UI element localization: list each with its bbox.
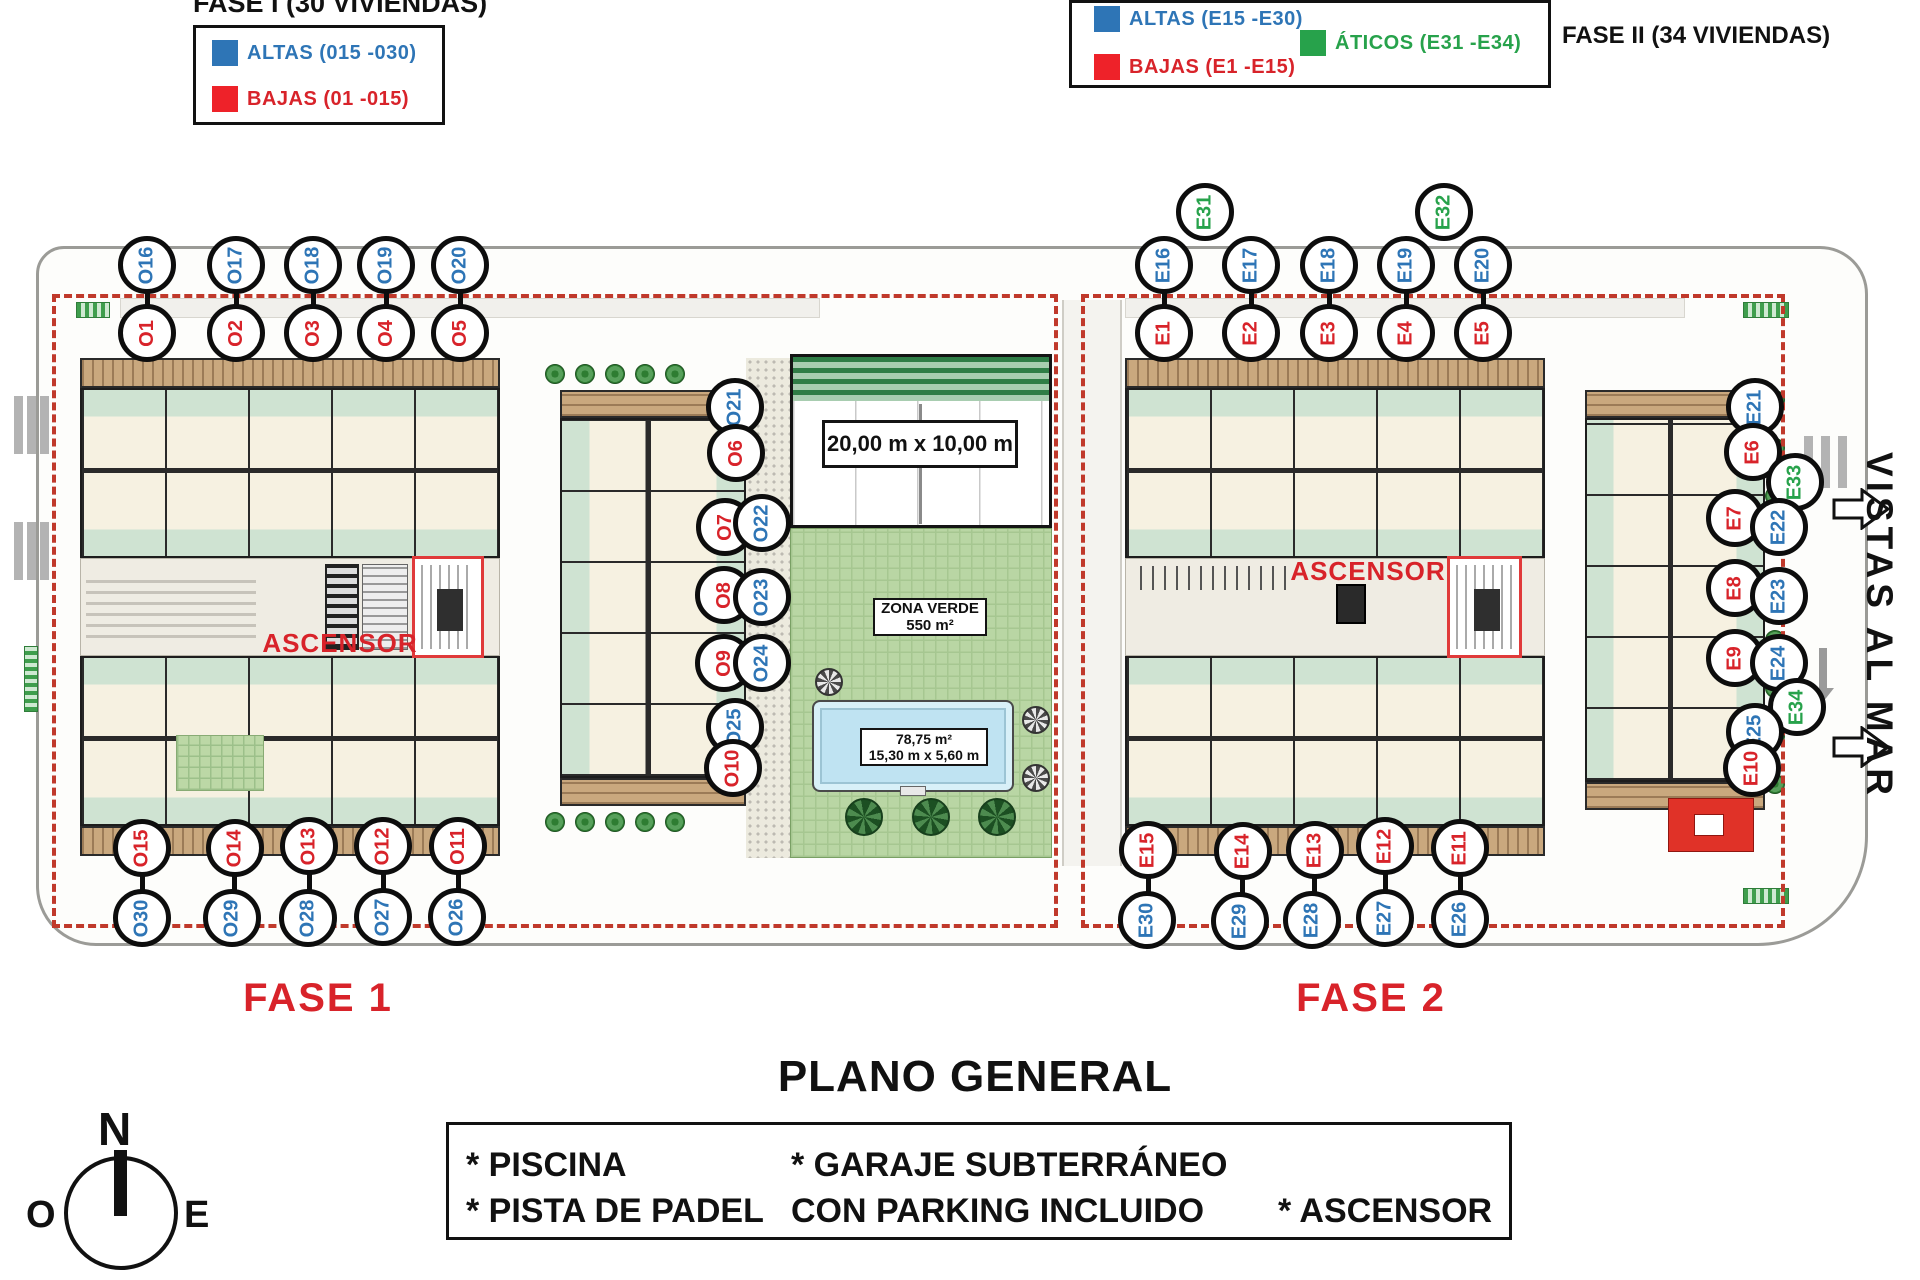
unit-marker-O14: O14 bbox=[206, 819, 264, 877]
curb-bar bbox=[40, 396, 49, 454]
amenity-pista-padel: * PISTA DE PADEL bbox=[466, 1192, 764, 1231]
legend-label: BAJAS (E1 -E15) bbox=[1129, 56, 1295, 79]
unit-marker-label: E11 bbox=[1448, 831, 1471, 865]
compass-north-label: N bbox=[98, 1102, 131, 1156]
unit-marker-O3: O3 bbox=[284, 304, 342, 362]
padel-dimensions-box: 20,00 m x 10,00 m bbox=[822, 420, 1018, 468]
unit-marker-E10: E10 bbox=[1723, 739, 1781, 797]
unit-marker-label: O17 bbox=[225, 246, 248, 284]
unit-marker-label: E28 bbox=[1301, 902, 1324, 938]
unit-marker-label: O12 bbox=[372, 827, 395, 865]
fase1-ascensor-label: ASCENSOR bbox=[225, 628, 455, 659]
unit-marker-E20: E20 bbox=[1454, 236, 1512, 294]
unit-marker-E14: E14 bbox=[1214, 822, 1272, 880]
unit-marker-E1: E1 bbox=[1135, 304, 1193, 362]
unit-marker-label: O20 bbox=[449, 246, 472, 284]
legend-fase2-box: ALTAS (E15 -E30) BAJAS (E1 -E15) ÁTICOS … bbox=[1069, 0, 1551, 88]
unit-marker-E31: E31 bbox=[1176, 183, 1234, 241]
page-title: PLANO GENERAL bbox=[760, 1052, 1190, 1102]
unit-marker-label: O18 bbox=[302, 246, 325, 284]
unit-marker-label: O29 bbox=[221, 899, 244, 937]
fase2-ascensor-label: ASCENSOR bbox=[1258, 556, 1478, 587]
zona-verde-box: ZONA VERDE 550 m² bbox=[873, 598, 987, 636]
fase2-bottom-wing-units bbox=[1125, 656, 1545, 826]
elevator-cab bbox=[1474, 589, 1500, 631]
site-plan-stage: FASE I (30 VIVIENDAS) ALTAS (015 -030) B… bbox=[0, 0, 1920, 1280]
unit-marker-O24: O24 bbox=[733, 634, 791, 692]
bajas-color-swatch bbox=[1094, 54, 1120, 80]
unit-marker-label: E22 bbox=[1768, 509, 1791, 545]
unit-marker-label: O19 bbox=[375, 246, 398, 284]
curb-bar bbox=[14, 522, 23, 580]
amenity-parking: CON PARKING INCLUIDO bbox=[791, 1192, 1204, 1231]
unit-marker-label: E12 bbox=[1374, 828, 1397, 864]
unit-marker-label: E6 bbox=[1742, 440, 1765, 464]
fase2-top-wing-deck bbox=[1125, 358, 1545, 388]
unit-marker-label: E30 bbox=[1136, 902, 1159, 938]
unit-marker-E28: E28 bbox=[1283, 891, 1341, 949]
tree-icon bbox=[635, 812, 655, 832]
unit-marker-label: E4 bbox=[1395, 321, 1418, 345]
unit-marker-label: E27 bbox=[1374, 900, 1397, 936]
unit-marker-O5: O5 bbox=[431, 304, 489, 362]
unit-marker-O26: O26 bbox=[428, 888, 486, 946]
curb-bar bbox=[27, 396, 36, 454]
unit-marker-label: O4 bbox=[375, 320, 398, 347]
unit-marker-label: E14 bbox=[1232, 833, 1255, 869]
unit-marker-O13: O13 bbox=[280, 817, 338, 875]
pool-dimensions: 15,30 m x 5,60 m bbox=[869, 747, 980, 763]
unit-marker-E27: E27 bbox=[1356, 889, 1414, 947]
unit-marker-label: O11 bbox=[446, 828, 469, 865]
unit-marker-E13: E13 bbox=[1286, 821, 1344, 879]
legend-item-aticos-f2: ÁTICOS (E31 -E34) bbox=[1300, 30, 1521, 56]
compass-east-label: E bbox=[184, 1194, 209, 1237]
unit-marker-label: E1 bbox=[1153, 321, 1176, 345]
unit-marker-E5: E5 bbox=[1454, 304, 1512, 362]
legend-fase1-title: FASE I (30 VIVIENDAS) bbox=[193, 0, 487, 19]
padel-dimensions-text: 20,00 m x 10,00 m bbox=[827, 431, 1013, 457]
unit-marker-O4: O4 bbox=[357, 304, 415, 362]
unit-marker-O17: O17 bbox=[207, 236, 265, 294]
unit-marker-label: E33 bbox=[1784, 464, 1807, 500]
curb-bar bbox=[40, 522, 49, 580]
planter bbox=[1743, 888, 1789, 904]
unit-marker-label: E3 bbox=[1318, 321, 1341, 345]
unit-marker-label: O23 bbox=[751, 578, 774, 616]
unit-marker-label: E31 bbox=[1194, 194, 1217, 230]
unit-marker-label: E2 bbox=[1240, 321, 1263, 345]
unit-marker-E32: E32 bbox=[1415, 183, 1473, 241]
unit-marker-O16: O16 bbox=[118, 236, 176, 294]
tree-icon bbox=[605, 364, 625, 384]
unit-marker-label: E21 bbox=[1744, 389, 1767, 425]
fase1-top-wing-deck bbox=[80, 358, 500, 388]
unit-marker-O29: O29 bbox=[203, 889, 261, 947]
planter bbox=[24, 646, 38, 712]
unit-marker-O1: O1 bbox=[118, 304, 176, 362]
unit-marker-E12: E12 bbox=[1356, 817, 1414, 875]
tree-icon bbox=[605, 812, 625, 832]
pool-steps bbox=[900, 786, 926, 796]
tree-icon bbox=[665, 812, 685, 832]
unit-marker-label: E18 bbox=[1318, 247, 1341, 283]
amenity-piscina: * PISCINA bbox=[466, 1146, 627, 1185]
unit-marker-E23: E23 bbox=[1750, 567, 1808, 625]
zona-verde-area-value: 550 m² bbox=[906, 617, 954, 634]
utility-room-door bbox=[1694, 814, 1724, 837]
unit-marker-O20: O20 bbox=[431, 236, 489, 294]
planter bbox=[1743, 302, 1789, 318]
parasol-icon bbox=[815, 668, 843, 696]
unit-marker-label: O1 bbox=[136, 320, 159, 347]
palm-tree-icon bbox=[978, 798, 1016, 836]
legend-item-bajas-f2: BAJAS (E1 -E15) bbox=[1094, 54, 1295, 80]
unit-marker-label: O15 bbox=[131, 829, 154, 867]
access-road bbox=[1062, 300, 1122, 866]
unit-marker-label: E17 bbox=[1240, 247, 1263, 283]
palm-tree-icon bbox=[845, 798, 883, 836]
unit-marker-label: E13 bbox=[1304, 832, 1327, 868]
unit-marker-O10: O10 bbox=[704, 739, 762, 797]
curb-bar bbox=[14, 396, 23, 454]
unit-marker-label: O2 bbox=[225, 320, 248, 347]
unit-marker-label: E29 bbox=[1229, 903, 1252, 939]
unit-marker-O2: O2 bbox=[207, 304, 265, 362]
unit-marker-label: E10 bbox=[1741, 750, 1764, 786]
unit-marker-label: O30 bbox=[131, 899, 154, 937]
unit-marker-label: E5 bbox=[1472, 321, 1495, 345]
unit-marker-O22: O22 bbox=[733, 494, 791, 552]
fase2-label: FASE 2 bbox=[1286, 976, 1456, 1021]
tree-icon bbox=[575, 364, 595, 384]
fase2-stair-core bbox=[1336, 584, 1366, 624]
zona-verde-title: ZONA VERDE bbox=[881, 600, 979, 617]
unit-marker-label: O3 bbox=[302, 320, 325, 347]
unit-marker-label: E23 bbox=[1768, 578, 1791, 614]
unit-marker-label: E16 bbox=[1153, 247, 1176, 283]
unit-marker-label: E20 bbox=[1472, 247, 1495, 283]
unit-marker-E29: E29 bbox=[1211, 892, 1269, 950]
parasol-icon bbox=[1022, 706, 1050, 734]
compass-needle bbox=[114, 1150, 127, 1216]
unit-marker-label: O14 bbox=[224, 829, 247, 867]
legend-item-bajas-f1: BAJAS (01 -015) bbox=[212, 86, 409, 112]
down-arrow-icon bbox=[1819, 648, 1827, 688]
unit-marker-O28: O28 bbox=[279, 889, 337, 947]
tree-row-bottom bbox=[545, 808, 715, 836]
vistas-al-mar-label: VISTAS AL MAR bbox=[1858, 452, 1900, 832]
unit-marker-O18: O18 bbox=[284, 236, 342, 294]
fase2-utility-room bbox=[1668, 798, 1754, 852]
unit-marker-label: E26 bbox=[1449, 901, 1472, 937]
unit-marker-E17: E17 bbox=[1222, 236, 1280, 294]
unit-marker-E26: E26 bbox=[1431, 890, 1489, 948]
unit-marker-label: E9 bbox=[1724, 646, 1747, 670]
elevator-cab bbox=[437, 589, 463, 631]
unit-marker-E16: E16 bbox=[1135, 236, 1193, 294]
parasol-icon bbox=[1022, 764, 1050, 792]
legend-fase2-title: FASE II (34 VIVIENDAS) bbox=[1562, 22, 1830, 50]
palm-tree-icon bbox=[912, 798, 950, 836]
bajas-color-swatch bbox=[212, 86, 238, 112]
tree-icon bbox=[545, 812, 565, 832]
aticos-color-swatch bbox=[1300, 30, 1326, 56]
legend-label: ALTAS (E15 -E30) bbox=[1129, 8, 1303, 31]
unit-marker-label: O24 bbox=[751, 644, 774, 682]
unit-marker-O12: O12 bbox=[354, 817, 412, 875]
unit-marker-label: O27 bbox=[372, 898, 395, 936]
unit-marker-E4: E4 bbox=[1377, 304, 1435, 362]
unit-marker-O27: O27 bbox=[354, 888, 412, 946]
unit-marker-E11: E11 bbox=[1431, 819, 1489, 877]
tree-row-top bbox=[545, 360, 715, 388]
unit-marker-E18: E18 bbox=[1300, 236, 1358, 294]
unit-marker-E19: E19 bbox=[1377, 236, 1435, 294]
unit-marker-label: O13 bbox=[298, 827, 321, 865]
unit-marker-label: E8 bbox=[1724, 576, 1747, 600]
legend-label: ALTAS (015 -030) bbox=[247, 42, 417, 65]
unit-marker-O15: O15 bbox=[113, 819, 171, 877]
unit-marker-E22: E22 bbox=[1750, 498, 1808, 556]
unit-marker-E3: E3 bbox=[1300, 304, 1358, 362]
fase1-top-wing-units bbox=[80, 388, 500, 558]
altas-color-swatch bbox=[212, 40, 238, 66]
unit-marker-label: O28 bbox=[297, 899, 320, 937]
fase2-top-wing-units bbox=[1125, 388, 1545, 558]
unit-marker-label: O26 bbox=[446, 898, 469, 936]
amenity-ascensor: * ASCENSOR bbox=[1278, 1192, 1492, 1231]
unit-marker-label: O10 bbox=[722, 749, 745, 787]
unit-marker-E2: E2 bbox=[1222, 304, 1280, 362]
padel-court-stand bbox=[793, 357, 1049, 401]
unit-marker-label: O6 bbox=[725, 440, 748, 467]
legend-label: BAJAS (01 -015) bbox=[247, 88, 409, 111]
fase1-bottom-wing-units bbox=[80, 656, 500, 826]
curb-bar bbox=[27, 522, 36, 580]
unit-marker-E30: E30 bbox=[1118, 891, 1176, 949]
unit-marker-label: O22 bbox=[751, 504, 774, 542]
unit-marker-O23: O23 bbox=[733, 568, 791, 626]
legend-item-altas-f2: ALTAS (E15 -E30) bbox=[1094, 6, 1303, 32]
tree-icon bbox=[635, 364, 655, 384]
altas-color-swatch bbox=[1094, 6, 1120, 32]
unit-marker-label: O16 bbox=[136, 246, 159, 284]
unit-marker-label: E34 bbox=[1786, 689, 1809, 725]
legend-item-altas-f1: ALTAS (015 -030) bbox=[212, 40, 417, 66]
unit-marker-O19: O19 bbox=[357, 236, 415, 294]
unit-marker-label: E19 bbox=[1395, 247, 1418, 283]
tree-icon bbox=[545, 364, 565, 384]
curb-bar bbox=[1838, 436, 1847, 488]
unit-marker-label: O5 bbox=[449, 320, 472, 347]
pool-area-value: 78,75 m² bbox=[896, 731, 952, 747]
planter bbox=[76, 302, 110, 318]
unit-marker-label: E15 bbox=[1137, 832, 1160, 868]
compass-west-label: O bbox=[26, 1194, 56, 1237]
legend-label: ÁTICOS (E31 -E34) bbox=[1335, 32, 1521, 55]
unit-marker-O30: O30 bbox=[113, 889, 171, 947]
fase1-label: FASE 1 bbox=[233, 976, 403, 1021]
unit-marker-label: E24 bbox=[1768, 645, 1791, 681]
unit-marker-E15: E15 bbox=[1119, 821, 1177, 879]
legend-fase1-box: ALTAS (015 -030) BAJAS (01 -015) bbox=[193, 25, 445, 125]
tree-icon bbox=[575, 812, 595, 832]
unit-marker-label: O21 bbox=[724, 388, 747, 426]
fase1-garden-patch bbox=[176, 735, 264, 791]
tree-icon bbox=[665, 364, 685, 384]
pool-info-box: 78,75 m² 15,30 m x 5,60 m bbox=[860, 728, 988, 766]
unit-marker-O6: O6 bbox=[707, 424, 765, 482]
unit-marker-label: E7 bbox=[1724, 506, 1747, 530]
unit-marker-O11: O11 bbox=[429, 817, 487, 875]
unit-marker-label: E32 bbox=[1433, 194, 1456, 230]
amenity-garaje: * GARAJE SUBTERRÁNEO bbox=[791, 1146, 1227, 1185]
